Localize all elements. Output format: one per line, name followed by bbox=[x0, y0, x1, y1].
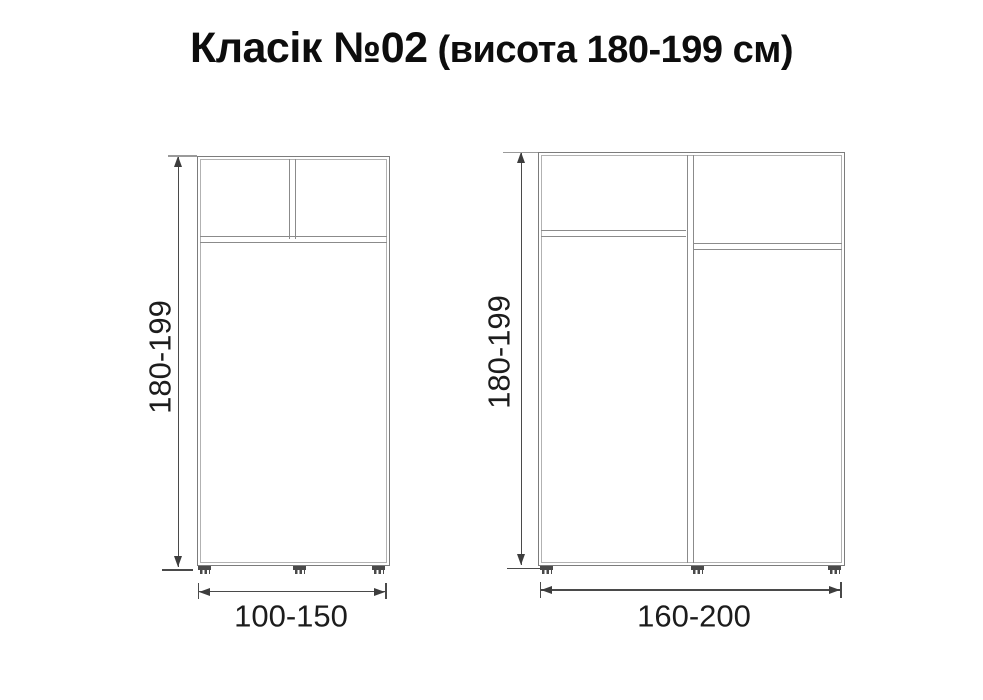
arrow-left-icon bbox=[541, 586, 552, 594]
dimension-tick bbox=[840, 582, 842, 598]
arrow-right-icon bbox=[829, 586, 840, 594]
dimension-line bbox=[198, 591, 386, 593]
title-main: Класік №02 bbox=[190, 24, 428, 72]
cabinet-foot-icon bbox=[691, 566, 704, 574]
left-cabinet-outline bbox=[197, 156, 390, 566]
dimension-tick bbox=[162, 569, 193, 571]
right-width-label: 160-200 bbox=[637, 601, 751, 632]
cabinet-foot-icon bbox=[828, 566, 841, 574]
right-height-label: 180-199 bbox=[484, 295, 515, 409]
cabinet-foot-icon bbox=[293, 566, 306, 574]
dimension-line bbox=[521, 153, 523, 565]
right-cabinet-left-shelf-divider bbox=[541, 230, 686, 237]
right-cabinet-middle-divider bbox=[687, 155, 694, 563]
cabinet-foot-icon bbox=[372, 566, 385, 574]
dimension-line bbox=[178, 157, 180, 567]
arrow-right-icon bbox=[374, 588, 385, 596]
dimension-tick bbox=[385, 583, 387, 599]
extension-line bbox=[168, 155, 197, 157]
left-height-label: 180-199 bbox=[145, 300, 176, 414]
cabinet-foot-icon bbox=[198, 566, 211, 574]
left-cabinet-mezzanine-divider bbox=[289, 159, 296, 239]
right-cabinet-outline bbox=[538, 152, 845, 566]
arrow-down-icon bbox=[174, 556, 182, 567]
left-cabinet-shelf-divider bbox=[200, 236, 387, 243]
arrow-down-icon bbox=[517, 554, 525, 565]
dimension-tick bbox=[507, 568, 540, 570]
right-cabinet-right-shelf-divider bbox=[694, 243, 843, 250]
cabinet-foot-icon bbox=[540, 566, 553, 574]
left-width-label: 100-150 bbox=[234, 601, 348, 632]
page-title: Класік №02(висота 180-199 см) bbox=[0, 26, 983, 71]
arrow-left-icon bbox=[199, 588, 210, 596]
arrow-up-icon bbox=[174, 156, 182, 167]
title-sub: (висота 180-199 см) bbox=[438, 29, 794, 71]
arrow-up-icon bbox=[517, 152, 525, 163]
diagram-canvas: Класік №02(висота 180-199 см) 180-199 bbox=[0, 0, 983, 700]
dimension-line bbox=[540, 589, 841, 591]
extension-line bbox=[503, 152, 538, 154]
